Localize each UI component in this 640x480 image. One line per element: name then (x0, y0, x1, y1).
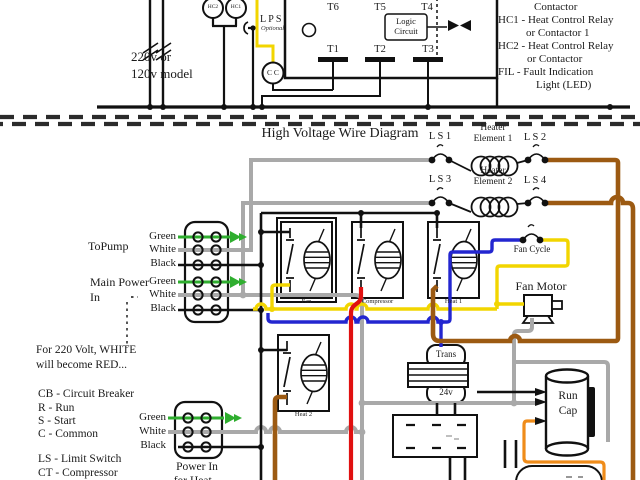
relay-fan-label: Fan (289, 299, 324, 306)
black-board-down (450, 457, 465, 480)
lps-label: L P S (260, 15, 282, 26)
model-label-line2: 120v model (131, 67, 193, 81)
red-wire (351, 287, 361, 480)
hc-relay-wires (212, 18, 237, 107)
transformer-label: Trans (427, 350, 465, 359)
terminal-bar-t3 (413, 57, 443, 62)
fan-cycle-label: Fan Cycle (503, 245, 561, 254)
run-cap-label-line1: Run (551, 390, 585, 402)
t5-label: T5 (369, 2, 391, 13)
power-in-label-line1: Power In (166, 461, 228, 473)
main-power-label-line1: Main Power (90, 276, 149, 289)
black-compressor-leads (505, 440, 516, 468)
heater-element-2-coil (449, 198, 528, 217)
component-bodies (175, 218, 602, 480)
hv-legend-line: CT - Compressor (38, 467, 118, 479)
ls1-label: L S 1 (424, 131, 456, 142)
board-hole (303, 24, 316, 37)
t4-label: T4 (416, 2, 438, 13)
hv-legend-line: C - Common (38, 428, 98, 440)
hc1-label: HC1 (227, 5, 245, 11)
top-legend-line: or Contactor (527, 54, 582, 66)
topump-label: ToPump (88, 240, 129, 253)
fan-motor-body (523, 295, 562, 323)
wire-color-label: Black (142, 258, 176, 270)
main-power-pointer-dashes (127, 297, 138, 348)
t3-label: T3 (417, 44, 439, 55)
wire-color-label: White (142, 289, 176, 301)
wire-color-label: White (142, 244, 176, 256)
heater1-label-line1: Heater (467, 124, 519, 134)
top-legend-line: Light (LED) (536, 80, 591, 92)
top-legend-line: FIL - Fault Indication (498, 67, 593, 79)
relay-heat1-label: Heat 1 (431, 299, 476, 306)
circuit-board (393, 415, 477, 457)
note-line2: will become RED... (36, 359, 127, 371)
wiring-diagram-page: 220v or 120v model HC2 HC1 L P S Optiona… (0, 0, 640, 480)
top-legend-line: HC1 - Heat Control Relay (498, 15, 613, 27)
compressor-body (516, 466, 602, 480)
lps-optional-label: Optional (261, 26, 284, 33)
limit-switch-4 (525, 188, 549, 207)
hv-legend-line: CB - Circuit Breaker (38, 388, 134, 400)
wire-color-label: Black (128, 440, 166, 452)
limit-switch-2 (525, 145, 549, 164)
fan-motor-label: Fan Motor (509, 280, 573, 293)
top-legend-line: HC2 - Heat Control Relay (498, 41, 613, 53)
top-legend-line: Contactor (534, 2, 577, 14)
wire-color-label: Black (142, 303, 176, 315)
power-in-label-line2: for Heat... (166, 475, 228, 480)
lps-wire (248, 28, 253, 107)
t6-label: T6 (322, 2, 344, 13)
hv-legend-line: R - Run (38, 402, 74, 414)
section-separator (0, 117, 640, 124)
terminal-bar-t2 (365, 57, 395, 62)
wire-color-label: Green (142, 276, 176, 288)
hv-legend-line: LS - Limit Switch (38, 453, 121, 465)
blue-junction (438, 319, 444, 325)
hc2-label: HC2 (204, 5, 222, 11)
t2-label: T2 (369, 44, 391, 55)
wire-color-label: White (128, 426, 166, 438)
lps-terminal-dot (250, 25, 255, 30)
model-label-line1: 220v or (131, 50, 171, 64)
heater2-label-line2: Element 2 (459, 178, 527, 188)
wire-color-label: Green (142, 231, 176, 243)
hv-legend-line: S - Start (38, 415, 76, 427)
page-title: High Voltage Wire Diagram (250, 127, 430, 142)
heater1-label-line2: Element 1 (459, 135, 527, 145)
wire-color-label: Green (128, 412, 166, 424)
relay-compressor-label: Compressor (351, 299, 404, 306)
t1-label: T1 (322, 44, 344, 55)
heater2-label-line1: Heater (467, 167, 519, 177)
lps-switch-icon (244, 22, 248, 34)
transformer-24v-label: 24v (427, 388, 465, 397)
relay-heat2-label: Heat 2 (281, 412, 326, 419)
cc-label: C C (263, 69, 283, 77)
main-power-label-line2: In (90, 291, 100, 304)
fan-cycle-switch (520, 225, 544, 244)
logic-label-line2: Circuit (385, 27, 427, 36)
terminal-bar-t1 (318, 57, 348, 62)
top-legend-line: or Contactor 1 (526, 28, 590, 40)
run-cap-label-line2: Cap (551, 405, 585, 417)
logic-label-line1: Logic (385, 17, 427, 26)
note-line1: For 220 Volt, WHITE (36, 344, 136, 356)
ls3-label: L S 3 (424, 174, 456, 185)
